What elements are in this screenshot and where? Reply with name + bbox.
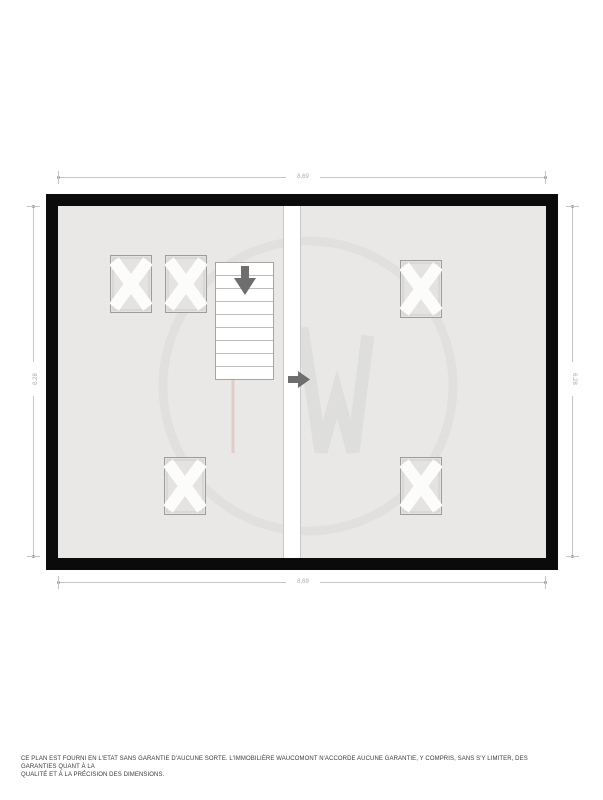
dimension-tick: [545, 171, 546, 184]
dimension-tick: [566, 206, 579, 207]
watermark-w-monogram: [303, 334, 367, 452]
dimension-right-label: 6.28: [570, 362, 578, 396]
skylight-window: [164, 457, 206, 515]
skylight-window: [400, 260, 442, 318]
skylight-window: [110, 255, 152, 313]
skylight-window: [400, 457, 442, 515]
stairs-down-arrow-icon: [233, 266, 257, 296]
floor-plan-page: 8.69 8.69 6.28 6.28: [0, 0, 603, 800]
dimension-tick: [58, 576, 59, 589]
footer-disclaimer: CE PLAN EST FOURNI EN L'ETAT SANS GARANT…: [21, 755, 561, 779]
entry-right-arrow-icon: [288, 370, 311, 389]
dimension-top-label: 8.69: [286, 173, 320, 181]
dimension-bottom-label: 8.69: [286, 578, 320, 586]
dimension-tick: [566, 556, 579, 557]
footer-line-2: QUALITÉ ET À LA PRÉCISION DES DIMENSIONS…: [21, 771, 561, 779]
dimension-tick: [58, 171, 59, 184]
footer-line-1: CE PLAN EST FOURNI EN L'ETAT SANS GARANT…: [21, 755, 561, 771]
skylight-window: [165, 255, 207, 313]
dimension-tick: [27, 556, 40, 557]
dimension-tick: [545, 576, 546, 589]
dimension-tick: [27, 206, 40, 207]
dimension-left-label: 6.28: [32, 362, 40, 396]
staircase: [215, 262, 274, 380]
attic-floor: Grenier 54.57 m² (8.69 × 6.28): [58, 206, 546, 558]
